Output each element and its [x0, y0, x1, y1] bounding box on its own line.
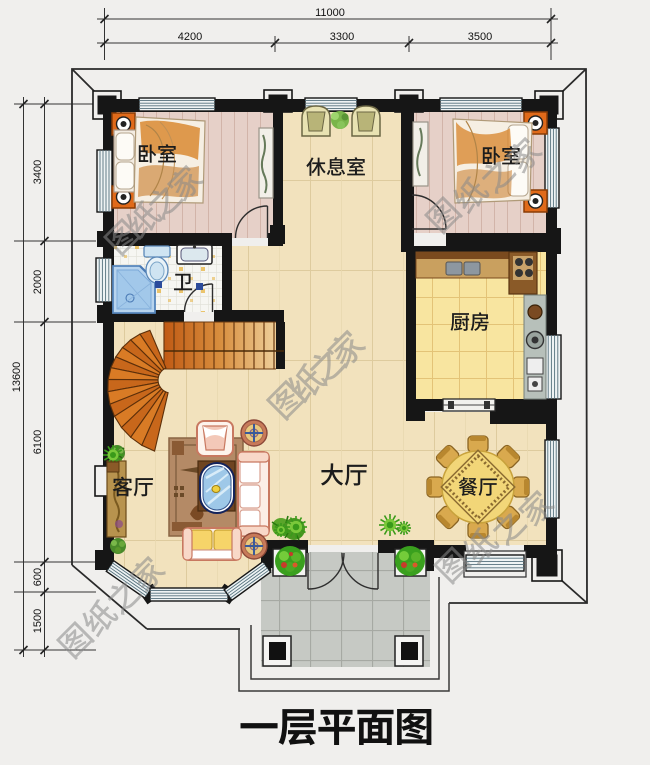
svg-text:3300: 3300 — [330, 31, 354, 43]
svg-text:600: 600 — [32, 568, 44, 586]
svg-text:2000: 2000 — [32, 270, 44, 294]
svg-text:4200: 4200 — [178, 31, 202, 43]
svg-text:1500: 1500 — [32, 609, 44, 633]
svg-text:3500: 3500 — [468, 31, 492, 43]
svg-text:6100: 6100 — [32, 430, 44, 454]
svg-text:11000: 11000 — [315, 7, 345, 19]
svg-text:13600: 13600 — [11, 362, 23, 393]
svg-text:3400: 3400 — [32, 160, 44, 184]
